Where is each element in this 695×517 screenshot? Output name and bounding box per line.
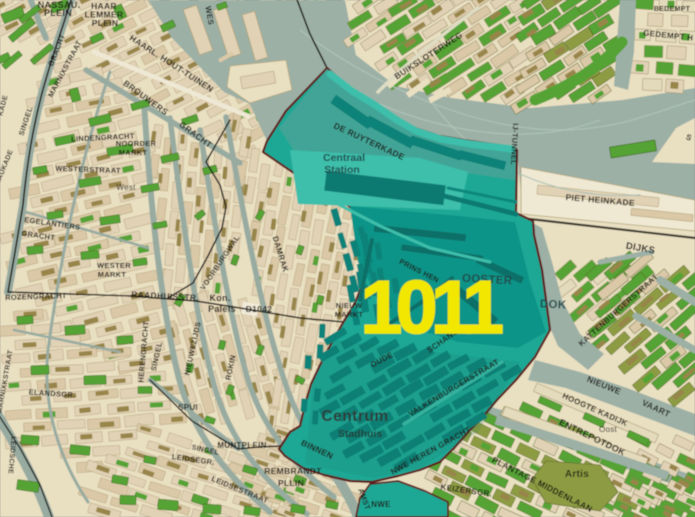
svg-text:MARKT: MARKT <box>98 270 127 279</box>
svg-text:PLLIN: PLLIN <box>278 478 304 488</box>
svg-text:PLEIN: PLEIN <box>44 8 72 18</box>
svg-text:WESTER: WESTER <box>97 261 131 270</box>
svg-text:Stadhuis: Stadhuis <box>338 428 382 440</box>
svg-text:West: West <box>116 183 136 192</box>
svg-text:Kon.: Kon. <box>209 293 230 303</box>
svg-text:NOORDER: NOORDER <box>116 139 157 148</box>
svg-text:Artis: Artis <box>565 469 589 480</box>
svg-text:NIEUW: NIEUW <box>336 301 363 310</box>
svg-text:Centrum: Centrum <box>321 408 388 425</box>
svg-text:NWE: NWE <box>371 500 391 509</box>
svg-text:MARKT: MARKT <box>119 148 148 157</box>
svg-text:SPUI: SPUI <box>178 403 198 412</box>
svg-text:Centraal: Centraal <box>323 152 365 164</box>
svg-text:DOK: DOK <box>540 298 567 311</box>
svg-text:Paleis: Paleis <box>208 304 236 314</box>
svg-text:Station: Station <box>324 164 360 176</box>
svg-text:MARKT: MARKT <box>335 310 364 319</box>
svg-text:PLEIN: PLEIN <box>92 18 119 28</box>
svg-text:MUNTPLEIN: MUNTPLEIN <box>217 441 266 450</box>
svg-text:REMBRANDT: REMBRANDT <box>264 466 322 476</box>
svg-text:Oost: Oost <box>599 425 618 434</box>
svg-text:D1042: D1042 <box>246 304 273 314</box>
svg-text:BEDEMPT: BEDEMPT <box>654 6 691 13</box>
svg-text:1011: 1011 <box>360 265 502 349</box>
